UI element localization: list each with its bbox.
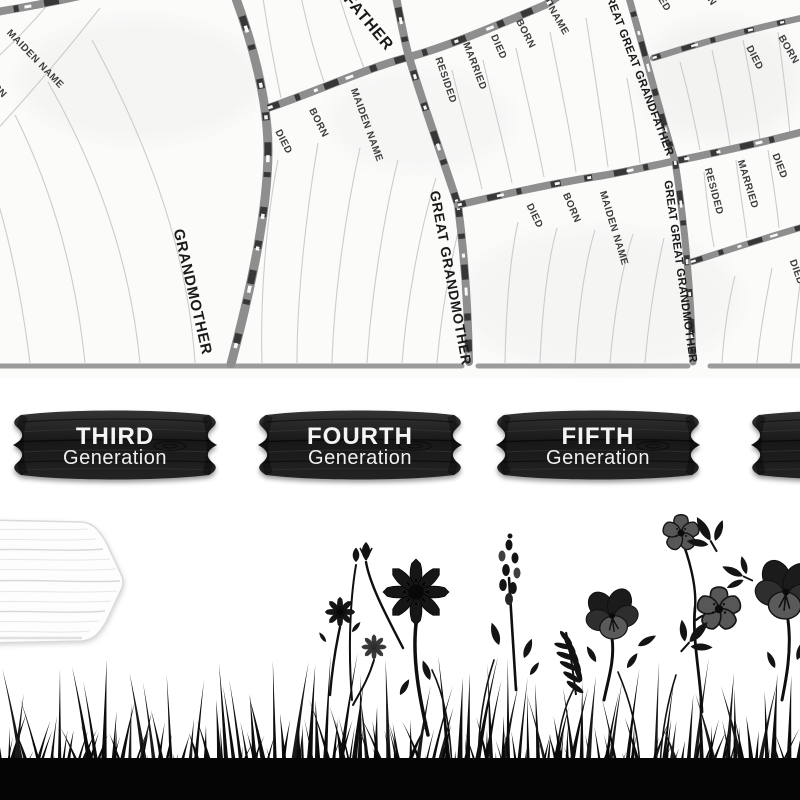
ground-band (0, 758, 800, 800)
pansy-flower (579, 582, 644, 643)
poster-stage: MAIDEN NAME BORN DIED BORN MAIDEN NAME R… (0, 0, 800, 800)
generation-word: Generation (63, 447, 167, 469)
meadow-silhouette (0, 500, 800, 800)
spike-flower (499, 534, 521, 606)
generation-word: Generation (308, 447, 412, 469)
generation-ordinal: THIRD (76, 423, 154, 450)
generation-plaque-fifth: FIFTH Generation (487, 404, 717, 496)
generation-plaque-fourth: FOURTH Generation (249, 404, 479, 496)
daisy-flower (361, 634, 386, 659)
daisy-flower (325, 597, 355, 627)
generation-plaque-partial (742, 404, 800, 496)
generation-plaque-third: THIRD Generation (4, 404, 234, 496)
generation-ordinal: FIFTH (562, 423, 635, 450)
cosmos-flower (383, 559, 449, 625)
pansy-flower (749, 553, 800, 622)
wildflowers (318, 506, 800, 770)
generation-word: Generation (546, 447, 650, 469)
wild-rose-flower (661, 515, 700, 552)
flower-bud (353, 548, 360, 562)
generation-ordinal: FOURTH (307, 423, 413, 450)
fan-chart: MAIDEN NAME BORN DIED BORN MAIDEN NAME R… (0, 0, 800, 400)
feather-leaf (554, 629, 585, 695)
